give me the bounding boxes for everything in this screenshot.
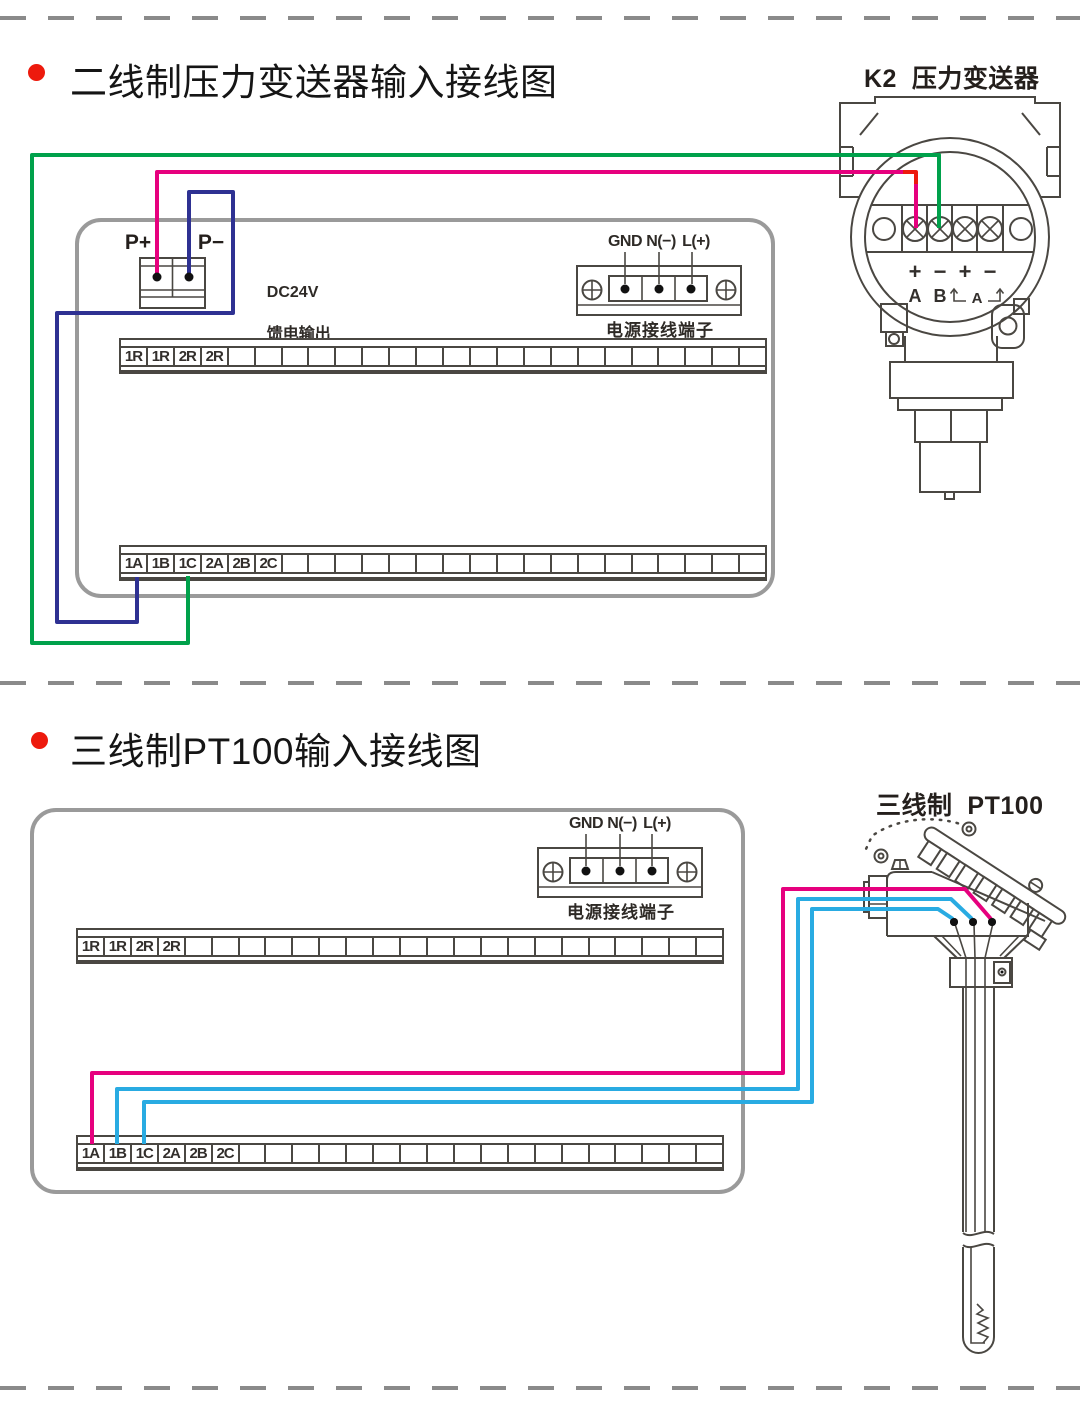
strip-cell — [309, 348, 336, 365]
strip-cell — [697, 938, 722, 955]
strip-cell — [283, 555, 310, 572]
strip-cell — [686, 348, 713, 365]
strip-cell — [444, 348, 471, 365]
strip-cell: 1R — [78, 938, 105, 955]
power-label-l-2: L(+) — [643, 815, 671, 833]
strip-cell — [309, 555, 336, 572]
strip-cell — [256, 348, 283, 365]
strip-cell — [643, 1145, 670, 1162]
strip-cell — [563, 938, 590, 955]
section1-instrument-box — [75, 218, 775, 598]
terminal-strip-1a-bottom: 1A1B1C2A2B2C — [119, 545, 767, 581]
strip-cell: 1B — [105, 1145, 132, 1162]
strip-cell — [579, 555, 606, 572]
strip-cell — [283, 348, 310, 365]
strip-cells: 1R1R2R2R — [121, 348, 765, 367]
strip-bottom-band — [78, 1164, 722, 1169]
svg-text:B: B — [934, 286, 947, 306]
strip-cell — [363, 348, 390, 365]
strip-cell — [740, 348, 765, 365]
svg-text:+: + — [909, 259, 922, 284]
power-caption-2: 电源接线端子 — [567, 898, 675, 923]
pt100-terminal-dot-1 — [950, 918, 958, 926]
strip-cell — [213, 938, 240, 955]
wiring-diagram-page: 二线制压力变送器输入接线图 K2 压力变送器 P+ P− DC24V 馈电输出 … — [0, 0, 1080, 1411]
strip-cell — [347, 1145, 374, 1162]
strip-cells: 1A1B1C2A2B2C — [78, 1145, 722, 1164]
strip-cell — [713, 348, 740, 365]
strip-cell — [471, 348, 498, 365]
strip-top-band — [121, 340, 765, 348]
strip-cell — [336, 555, 363, 572]
strip-cell — [670, 938, 697, 955]
strip-cell — [606, 555, 633, 572]
strip-cell — [471, 555, 498, 572]
svg-text:−: − — [984, 259, 997, 284]
strip-cell: 2A — [202, 555, 229, 572]
bottom-dashed-separator — [0, 1386, 1080, 1390]
strip-cell — [186, 938, 213, 955]
strip-cell — [552, 348, 579, 365]
strip-bottom-band — [121, 574, 765, 579]
svg-text:A: A — [972, 290, 983, 307]
strip-cell — [417, 555, 444, 572]
strip-cell — [590, 938, 617, 955]
cap-chain-dotted — [866, 819, 966, 849]
strip-cell: 1R — [121, 348, 148, 365]
strip-cell — [536, 938, 563, 955]
svg-text:−: − — [934, 259, 947, 284]
section2-device-label: 三线制 PT100 — [876, 786, 1044, 822]
strip-cell — [552, 555, 579, 572]
strip-top-band — [121, 547, 765, 555]
strip-cell — [525, 555, 552, 572]
strip-cell — [401, 938, 428, 955]
strip-cell — [509, 1145, 536, 1162]
strip-cell — [266, 1145, 293, 1162]
p-minus-label: P− — [198, 231, 224, 255]
strip-cell — [428, 938, 455, 955]
strip-cell — [266, 938, 293, 955]
strip-cell: 1C — [175, 555, 202, 572]
strip-cell: 2R — [202, 348, 229, 365]
strip-cell — [229, 348, 256, 365]
strip-cell — [293, 938, 320, 955]
strip-cell — [240, 1145, 267, 1162]
strip-cell — [336, 348, 363, 365]
cap-group — [905, 814, 1075, 953]
pressure-transmitter-drawing: + − + − A B A — [840, 97, 1060, 499]
strip-cell — [482, 1145, 509, 1162]
red-wire-elbow — [903, 172, 916, 185]
strip-cell — [659, 348, 686, 365]
section2-bullet-icon — [31, 732, 48, 749]
feed-line1: DC24V — [267, 284, 319, 301]
strip-cell: 1A — [78, 1145, 105, 1162]
strip-cell — [563, 1145, 590, 1162]
svg-text:+: + — [959, 259, 972, 284]
strip-cell — [347, 938, 374, 955]
strip-cell — [713, 555, 740, 572]
strip-cell — [590, 1145, 617, 1162]
strip-cell — [616, 938, 643, 955]
strip-cell: 1A — [121, 555, 148, 572]
strip-cell — [498, 555, 525, 572]
section1-bullet-icon — [28, 64, 45, 81]
top-dashed-separator — [0, 16, 1080, 20]
strip-cell — [455, 1145, 482, 1162]
strip-bottom-band — [121, 367, 765, 372]
strip-cell: 2R — [175, 348, 202, 365]
strip-top-band — [78, 1137, 722, 1145]
strip-cell — [633, 555, 660, 572]
strip-cell — [498, 348, 525, 365]
power-label-n-2: N(−) — [607, 815, 637, 833]
strip-cell — [444, 555, 471, 572]
strip-cell — [579, 348, 606, 365]
strip-cell — [697, 1145, 722, 1162]
power-label-l-1: L(+) — [682, 233, 710, 251]
strip-cell — [740, 555, 765, 572]
strip-cell: 2C — [256, 555, 283, 572]
strip-cell — [686, 555, 713, 572]
terminal-strip-1r-top: 1R1R2R2R — [119, 338, 767, 374]
strip-cell — [374, 1145, 401, 1162]
svg-text:A: A — [909, 286, 922, 306]
strip-cell — [320, 938, 347, 955]
power-label-gnd-1: GND — [608, 233, 642, 251]
strip-cell — [482, 938, 509, 955]
section1-title: 二线制压力变送器输入接线图 — [70, 52, 558, 106]
strip-cell — [525, 348, 552, 365]
strip-cell — [374, 938, 401, 955]
strip-cell — [293, 1145, 320, 1162]
strip-cell — [633, 348, 660, 365]
strip-cell: 2R — [159, 938, 186, 955]
pt100-terminal-dot-2 — [969, 918, 977, 926]
middle-dashed-separator — [0, 681, 1080, 685]
strip-cell — [455, 938, 482, 955]
section2-title: 三线制PT100输入接线图 — [70, 721, 482, 775]
power-label-n-1: N(−) — [646, 233, 676, 251]
strip-cell — [428, 1145, 455, 1162]
strip-cell — [417, 348, 444, 365]
strip-cell: 1C — [132, 1145, 159, 1162]
strip-cell: 1R — [105, 938, 132, 955]
strip-cell — [606, 348, 633, 365]
diagram-linework: + − + − A B A — [0, 0, 1080, 1411]
strip-cell — [643, 938, 670, 955]
power-label-gnd-2: GND — [569, 815, 603, 833]
jumper-bracket-marks — [951, 289, 1004, 301]
strip-cell — [509, 938, 536, 955]
strip-cells: 1A1B1C2A2B2C — [121, 555, 765, 574]
strip-cell: 2A — [159, 1145, 186, 1162]
transmitter-screw-terminals — [903, 217, 1002, 241]
strip-cell — [390, 555, 417, 572]
strip-cell — [320, 1145, 347, 1162]
strip-cell — [390, 348, 417, 365]
strip-cell — [240, 938, 267, 955]
strip-bottom-band — [78, 957, 722, 962]
strip-cell: 1R — [148, 348, 175, 365]
p-plus-label: P+ — [125, 231, 151, 255]
strip-cell: 2B — [186, 1145, 213, 1162]
strip-cell — [659, 555, 686, 572]
strip-cell: 2R — [132, 938, 159, 955]
section1-device-label: K2 压力变送器 — [864, 59, 1039, 95]
strip-top-band — [78, 930, 722, 938]
strip-cell — [401, 1145, 428, 1162]
strip-cell — [536, 1145, 563, 1162]
strip-cells: 1R1R2R2R — [78, 938, 722, 957]
pt100-sensor-drawing — [864, 814, 1075, 1353]
strip-cell: 2B — [229, 555, 256, 572]
terminal-strip-1r-top-2: 1R1R2R2R — [76, 928, 724, 964]
strip-cell: 1B — [148, 555, 175, 572]
strip-cell — [363, 555, 390, 572]
terminal-strip-1a-bottom-2: 1A1B1C2A2B2C — [76, 1135, 724, 1171]
strip-cell: 2C — [213, 1145, 240, 1162]
strip-cell — [616, 1145, 643, 1162]
pt100-terminal-dot-3 — [988, 918, 996, 926]
strip-cell — [670, 1145, 697, 1162]
